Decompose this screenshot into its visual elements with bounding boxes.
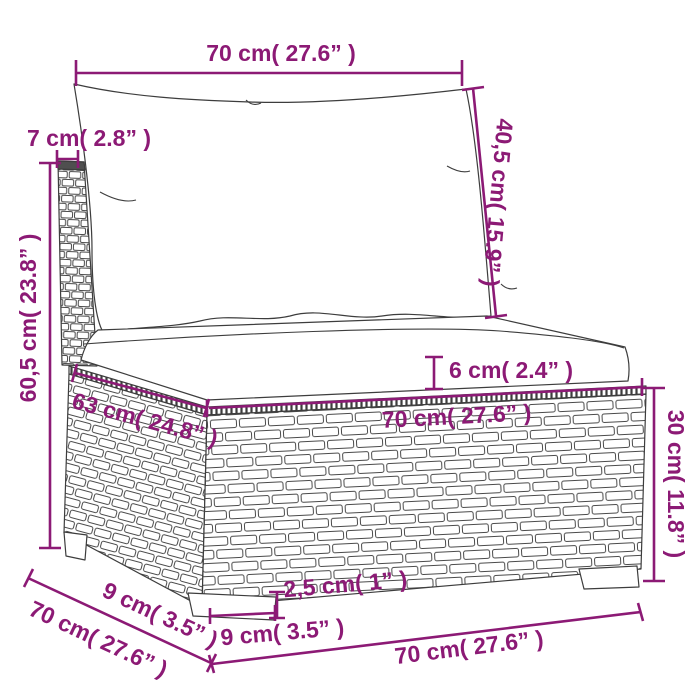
foot-back-left: [64, 532, 87, 560]
dim-label-base-height: 30 cm( 11.8” ): [663, 410, 689, 558]
dim-line-base-height: [643, 388, 665, 581]
back-post-top-cap: [58, 161, 85, 170]
back-cushion: [74, 84, 491, 332]
dim-label-foot-width: 9 cm( 3.5” ): [219, 614, 345, 651]
dim-line-total-height: [39, 163, 61, 548]
dim-label-total-height: 60,5 cm( 23.8” ): [15, 234, 41, 403]
sofa-line-art: [58, 84, 646, 620]
dim-label-post-width: 7 cm( 2.8” ): [27, 125, 151, 151]
diagram-page: 70 cm( 27.6” ) 7 cm( 2.8” ) 60,5 cm( 23.…: [0, 0, 700, 700]
foot-right: [579, 566, 639, 589]
dim-label-cushion-thickness: 6 cm( 2.4” ): [449, 357, 573, 383]
dim-label-top-width: 70 cm( 27.6” ): [206, 40, 356, 66]
diagram-canvas: 70 cm( 27.6” ) 7 cm( 2.8” ) 60,5 cm( 23.…: [0, 0, 700, 700]
